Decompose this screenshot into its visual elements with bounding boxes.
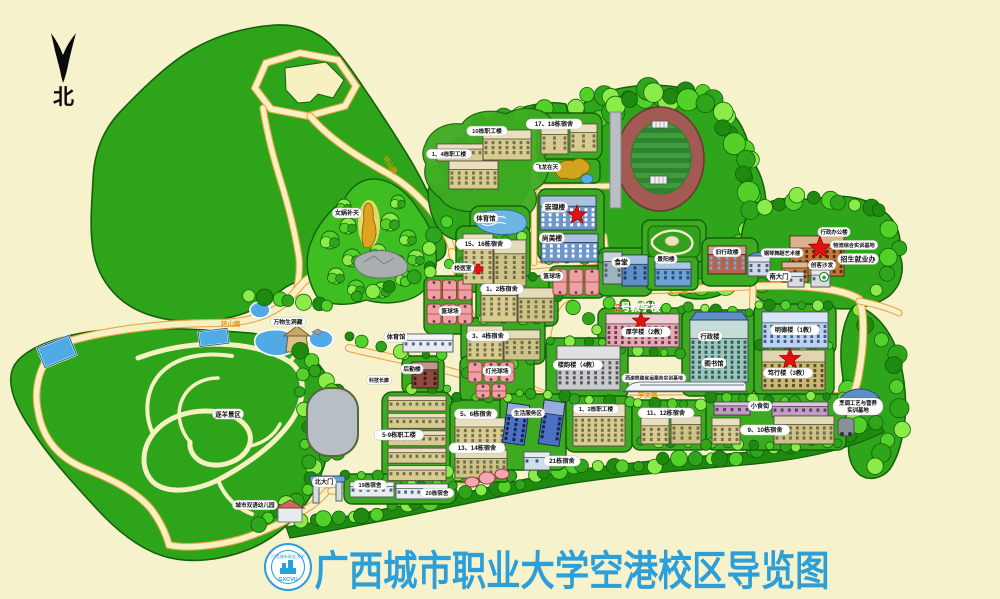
svg-text:景阳楼: 景阳楼 [656, 255, 675, 263]
svg-text:图书馆: 图书馆 [704, 358, 724, 367]
svg-text:烹调工艺与营养: 烹调工艺与营养 [839, 399, 877, 407]
svg-text:厚学楼（2教）: 厚学楼（2教） [626, 328, 667, 336]
svg-text:1、2栋职工楼: 1、2栋职工楼 [579, 405, 614, 413]
svg-text:1、4栋职工楼: 1、4栋职工楼 [432, 150, 467, 158]
svg-text:飞龙在天: 飞龙在天 [536, 163, 559, 171]
svg-text:13、14栋宿舍: 13、14栋宿舍 [458, 444, 497, 452]
svg-text:10栋职工楼: 10栋职工楼 [472, 127, 502, 135]
svg-text:食堂: 食堂 [613, 257, 628, 266]
svg-text:GXCVU: GXCVU [278, 577, 298, 583]
svg-text:小食街: 小食街 [750, 402, 770, 410]
svg-text:15、16栋宿舍: 15、16栋宿舍 [465, 240, 504, 248]
svg-text:万物生洞藏: 万物生洞藏 [273, 318, 303, 326]
svg-text:崇理楼: 崇理楼 [545, 202, 566, 211]
svg-text:旧行政楼: 旧行政楼 [715, 248, 738, 256]
svg-text:灯光球场: 灯光球场 [485, 367, 508, 375]
svg-text:尚美楼: 尚美楼 [542, 233, 563, 242]
svg-text:20栋宿舍: 20栋宿舍 [425, 489, 448, 497]
svg-text:物流综合实训基地: 物流综合实训基地 [833, 241, 875, 249]
svg-text:3、4栋宿舍: 3、4栋宿舍 [472, 332, 504, 340]
svg-text:19栋宿舍: 19栋宿舍 [358, 481, 381, 489]
svg-text:城市双语幼儿园: 城市双语幼儿园 [235, 501, 275, 509]
svg-text:广西城市职业大学空港校区导览图: 广西城市职业大学空港校区导览图 [315, 548, 830, 594]
svg-text:9、10栋宿舍: 9、10栋宿舍 [747, 426, 783, 434]
svg-text:创客沙发: 创客沙发 [810, 261, 834, 269]
svg-text:南大门: 南大门 [769, 271, 788, 280]
svg-text:行政楼: 行政楼 [699, 331, 720, 340]
svg-text:实训基地: 实训基地 [847, 406, 869, 414]
svg-text:生活服务区: 生活服务区 [514, 409, 542, 417]
svg-text:楼韵楼（4教）: 楼韵楼（4教） [558, 361, 599, 369]
svg-text:钢琴舞蹈艺术楼: 钢琴舞蹈艺术楼 [764, 249, 801, 257]
svg-text:篮球场: 篮球场 [542, 272, 561, 280]
svg-text:北: 北 [53, 86, 74, 109]
svg-text:西渝铁路省运乘务实训基地: 西渝铁路省运乘务实训基地 [625, 375, 683, 382]
svg-text:❋: ❋ [822, 275, 827, 282]
svg-text:1、2栋宿舍: 1、2栋宿舍 [486, 285, 518, 293]
svg-text:笃行楼（3教）: 笃行楼（3教） [767, 369, 809, 377]
svg-text:5-9栋职工楼: 5-9栋职工楼 [382, 431, 417, 439]
svg-text:后勤楼: 后勤楼 [403, 365, 421, 373]
svg-text:17、18栋宿舍: 17、18栋宿舍 [535, 120, 574, 128]
svg-text:逐羊景区: 逐羊景区 [215, 409, 241, 418]
svg-text:北大门: 北大门 [315, 478, 334, 486]
svg-text:广西城市职业大学: 广西城市职业大学 [271, 553, 305, 560]
svg-text:行政办公楼: 行政办公楼 [820, 228, 849, 236]
svg-text:环山路: 环山路 [221, 319, 241, 328]
svg-text:体育馆: 体育馆 [387, 333, 406, 341]
svg-text:体育馆: 体育馆 [476, 213, 496, 222]
svg-text:校医室: 校医室 [454, 264, 472, 272]
svg-text:女娲补天: 女娲补天 [335, 209, 359, 217]
svg-text:2号教学楼: 2号教学楼 [615, 301, 661, 314]
svg-text:明德楼（1教）: 明德楼（1教） [775, 326, 816, 334]
svg-text:招生就业办: 招生就业办 [841, 255, 876, 264]
svg-text:篮球场: 篮球场 [440, 307, 459, 315]
svg-text:5、6栋宿舍: 5、6栋宿舍 [460, 410, 492, 418]
svg-text:科技长廊: 科技长廊 [368, 377, 389, 384]
svg-text:21栋宿舍: 21栋宿舍 [549, 457, 575, 465]
svg-text:11、12栋宿舍: 11、12栋宿舍 [647, 409, 686, 417]
